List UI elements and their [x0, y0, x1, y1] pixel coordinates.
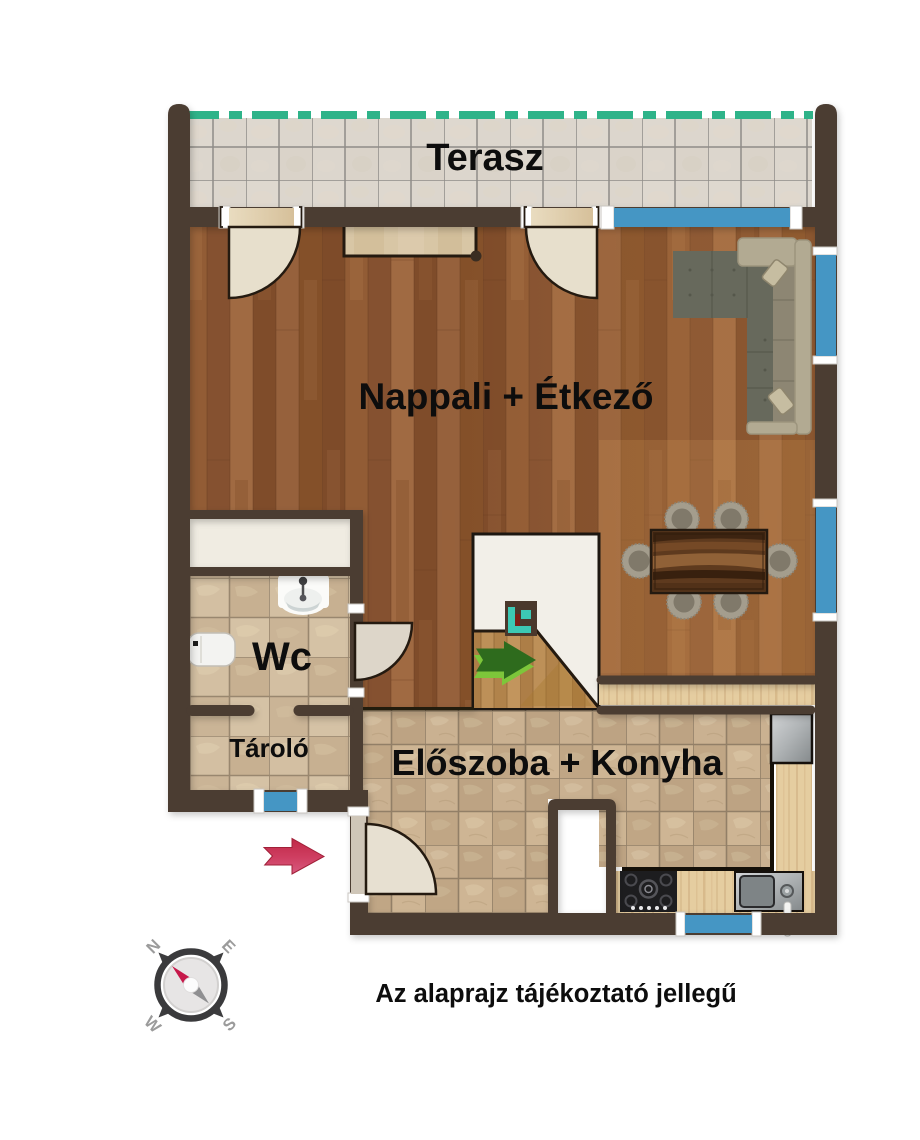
- svg-text:Terasz: Terasz: [426, 137, 544, 179]
- svg-text:Tároló: Tároló: [229, 733, 308, 763]
- svg-text:Az alaprajz tájékoztató jelleg: Az alaprajz tájékoztató jellegű: [375, 980, 736, 1008]
- svg-text:Nappali + Étkező: Nappali + Étkező: [358, 376, 653, 417]
- svg-text:Wc: Wc: [252, 635, 312, 679]
- svg-text:Előszoba + Konyha: Előszoba + Konyha: [391, 742, 723, 783]
